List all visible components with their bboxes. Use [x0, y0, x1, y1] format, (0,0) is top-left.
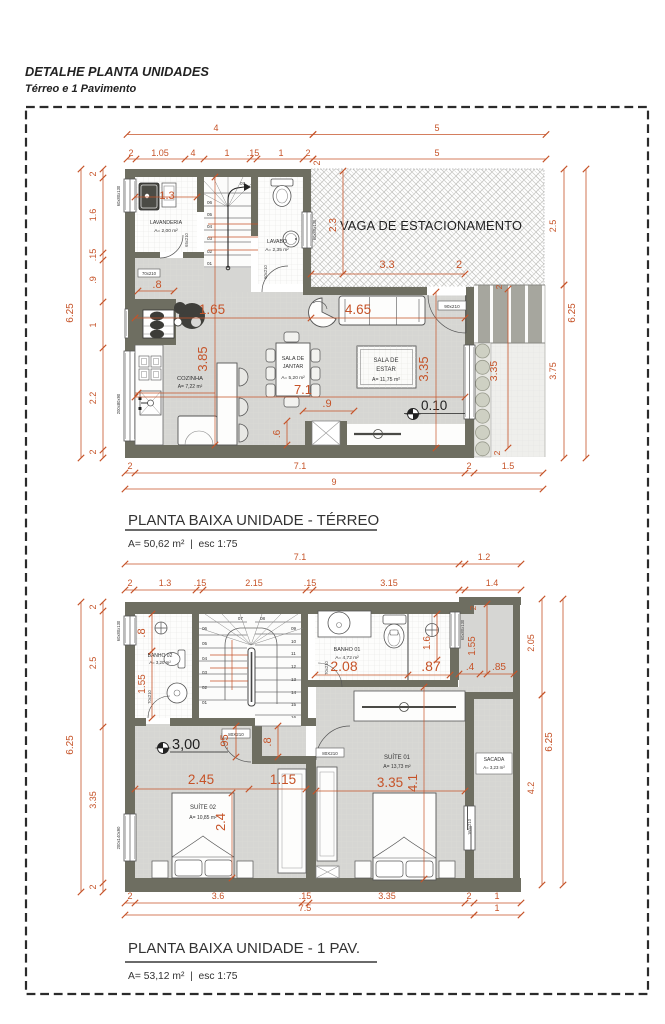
svg-text:3,00: 3,00: [172, 737, 200, 753]
svg-text:60x80x130: 60x80x130: [116, 185, 121, 206]
svg-text:70x210: 70x210: [142, 271, 157, 276]
svg-text:SALA DE: SALA DE: [373, 358, 398, 364]
svg-text:60x80x130: 60x80x130: [312, 219, 317, 240]
svg-text:2.2: 2.2: [88, 392, 98, 405]
svg-text:4.1: 4.1: [405, 774, 420, 792]
svg-text:6.25: 6.25: [65, 735, 76, 755]
svg-text:2.3: 2.3: [328, 218, 339, 232]
svg-text:LAVABO: LAVABO: [267, 239, 287, 245]
svg-text:15: 15: [291, 702, 297, 707]
svg-text:2: 2: [466, 461, 471, 471]
svg-text:.15: .15: [88, 249, 98, 262]
svg-text:2.5: 2.5: [88, 657, 98, 670]
svg-text:1.05: 1.05: [151, 148, 169, 158]
svg-text:08: 08: [260, 616, 266, 621]
svg-text:1.3: 1.3: [159, 190, 174, 202]
svg-text:.8: .8: [136, 628, 148, 637]
svg-text:.4: .4: [466, 662, 475, 673]
svg-text:4.65: 4.65: [345, 302, 371, 317]
svg-text:7.1: 7.1: [294, 461, 307, 471]
svg-text:A= 5,20 m²: A= 5,20 m²: [281, 375, 305, 381]
svg-text:.95: .95: [219, 734, 231, 749]
svg-text:03: 03: [202, 670, 208, 675]
svg-text:60x210: 60x210: [263, 264, 268, 278]
svg-text:Térreo e 1 Pavimento: Térreo e 1 Pavimento: [25, 83, 137, 95]
svg-text:2.5: 2.5: [548, 220, 558, 233]
svg-text:A= 3,20 m²: A= 3,20 m²: [149, 660, 171, 665]
svg-text:LAVANDERIA: LAVANDERIA: [150, 220, 183, 226]
svg-text:A= 50,62 m² | esc 1:75: A= 50,62 m² | esc 1:75: [128, 539, 238, 550]
svg-text:2.4: 2.4: [213, 813, 228, 831]
svg-text:2: 2: [88, 604, 98, 609]
svg-text:10: 10: [291, 639, 297, 644]
svg-text:11: 11: [291, 651, 296, 656]
svg-text:A= 11,75 m²: A= 11,75 m²: [372, 377, 400, 383]
svg-text:6.25: 6.25: [544, 732, 555, 752]
svg-text:4: 4: [190, 148, 195, 158]
svg-text:01: 01: [202, 700, 208, 705]
svg-text:2: 2: [128, 148, 133, 158]
svg-text:2.08: 2.08: [330, 658, 357, 674]
svg-text:VAGA DE ESTACIONAMENTO: VAGA DE ESTACIONAMENTO: [340, 218, 522, 233]
svg-text:02: 02: [202, 685, 208, 690]
svg-text:.87: .87: [421, 658, 441, 674]
svg-text:60x80x130: 60x80x130: [460, 619, 465, 640]
svg-text:1.55: 1.55: [467, 636, 478, 656]
svg-text:2: 2: [88, 449, 98, 454]
svg-text:14: 14: [291, 690, 297, 695]
svg-text:2: 2: [492, 450, 502, 455]
svg-text:04: 04: [207, 224, 213, 229]
svg-text:09: 09: [291, 626, 297, 631]
svg-text:65x210: 65x210: [184, 232, 189, 246]
svg-text:2: 2: [312, 160, 322, 165]
svg-text:9: 9: [331, 477, 336, 487]
svg-text:5: 5: [434, 148, 439, 158]
svg-text:.15: .15: [194, 578, 207, 588]
svg-text:7.5: 7.5: [299, 903, 312, 913]
svg-text:7.1: 7.1: [294, 552, 307, 562]
svg-text:70x210: 70x210: [324, 660, 329, 674]
svg-text:1: 1: [494, 903, 499, 913]
svg-text:4: 4: [213, 123, 218, 133]
svg-text:12: 12: [291, 664, 297, 669]
svg-text:1.3: 1.3: [159, 578, 172, 588]
svg-text:2: 2: [305, 148, 310, 158]
svg-text:06: 06: [202, 626, 208, 631]
svg-text:PLANTA BAIXA UNIDADE - 1 PAV.: PLANTA BAIXA UNIDADE - 1 PAV.: [128, 940, 360, 957]
svg-text:A= 53,12 m² | esc 1:75: A= 53,12 m² | esc 1:75: [128, 971, 238, 982]
svg-text:2: 2: [494, 284, 504, 289]
svg-text:2: 2: [456, 259, 462, 271]
svg-text:.8: .8: [152, 279, 161, 291]
svg-text:2.05: 2.05: [526, 634, 536, 652]
svg-text:3.35: 3.35: [378, 891, 396, 901]
svg-text:1.55: 1.55: [137, 674, 148, 694]
svg-text:1.65: 1.65: [199, 302, 225, 317]
svg-text:SUÍTE 02: SUÍTE 02: [190, 804, 217, 811]
svg-text:1.4: 1.4: [486, 578, 499, 588]
svg-text:4.2: 4.2: [526, 782, 536, 795]
svg-text:DETALHE PLANTA UNIDADES: DETALHE PLANTA UNIDADES: [25, 64, 209, 79]
svg-text:7.1: 7.1: [294, 382, 312, 397]
svg-text:ESTAR: ESTAR: [376, 367, 396, 373]
svg-text:A= 3,23 m²: A= 3,23 m²: [483, 765, 505, 770]
svg-text:1.15: 1.15: [270, 772, 296, 787]
svg-text:1.2: 1.2: [478, 552, 491, 562]
svg-text:2: 2: [127, 461, 132, 471]
svg-text:2: 2: [88, 884, 98, 889]
svg-text:.15: .15: [304, 578, 317, 588]
svg-text:5: 5: [434, 123, 439, 133]
svg-text:0.10: 0.10: [421, 398, 447, 413]
svg-text:A= 7,22 m²: A= 7,22 m²: [178, 384, 203, 390]
svg-text:05: 05: [202, 641, 208, 646]
svg-text:3.6: 3.6: [212, 891, 225, 901]
svg-text:3.35: 3.35: [88, 791, 98, 809]
svg-text:BANHO 02: BANHO 02: [148, 653, 173, 659]
svg-text:13: 13: [291, 677, 297, 682]
svg-text:06: 06: [207, 200, 213, 205]
svg-text:SALA DE: SALA DE: [282, 356, 305, 362]
svg-text:JANTAR: JANTAR: [283, 364, 304, 370]
svg-text:05: 05: [207, 212, 213, 217]
svg-text:2: 2: [466, 891, 471, 901]
svg-text:PLANTA BAIXA UNIDADE - TÉRREO: PLANTA BAIXA UNIDADE - TÉRREO: [128, 512, 379, 529]
svg-text:2.45: 2.45: [188, 772, 214, 787]
svg-text:04: 04: [202, 656, 208, 661]
svg-text:.8: .8: [262, 737, 274, 746]
svg-text:.15: .15: [247, 148, 260, 158]
svg-text:2: 2: [127, 891, 132, 901]
svg-text:3.15: 3.15: [380, 578, 398, 588]
svg-text:3.35: 3.35: [377, 775, 403, 790]
svg-text:3.35: 3.35: [488, 361, 500, 382]
svg-text:1.6: 1.6: [88, 209, 98, 222]
svg-text:3.75: 3.75: [548, 362, 558, 380]
svg-text:A= 2,00 m²: A= 2,00 m²: [154, 228, 178, 234]
svg-text:6.25: 6.25: [65, 303, 76, 323]
svg-text:01: 01: [207, 261, 213, 266]
svg-text:1: 1: [278, 148, 283, 158]
svg-text:.15: .15: [299, 891, 312, 901]
svg-text:SACADA: SACADA: [484, 757, 505, 763]
svg-text:3.35: 3.35: [416, 356, 431, 381]
svg-text:1.5: 1.5: [502, 461, 515, 471]
svg-text:1.6: 1.6: [422, 636, 433, 650]
svg-text:COZINHA: COZINHA: [177, 376, 203, 382]
svg-text:A= 2,35 m²: A= 2,35 m²: [265, 247, 289, 253]
svg-text:SUÍTE 01: SUÍTE 01: [384, 754, 411, 761]
svg-text:1: 1: [224, 148, 229, 158]
svg-text:.85: .85: [492, 662, 506, 673]
svg-text:3.85: 3.85: [195, 346, 210, 371]
svg-text:1: 1: [88, 322, 98, 327]
svg-text:BANHO 01: BANHO 01: [334, 647, 361, 653]
svg-text:80X210: 80X210: [322, 751, 338, 756]
svg-text:160x210: 160x210: [467, 818, 472, 835]
svg-text:07: 07: [238, 616, 244, 621]
svg-text:.6: .6: [272, 429, 283, 438]
svg-text:.9: .9: [322, 398, 331, 410]
svg-text:2: 2: [469, 605, 478, 610]
svg-text:200x140x90: 200x140x90: [116, 826, 121, 849]
svg-text:2: 2: [127, 578, 132, 588]
svg-text:.9: .9: [88, 276, 98, 284]
svg-text:200x80x90: 200x80x90: [116, 393, 121, 414]
svg-text:3.3: 3.3: [379, 259, 394, 271]
svg-text:60x80x130: 60x80x130: [116, 620, 121, 641]
svg-text:2: 2: [88, 171, 98, 176]
svg-text:2.15: 2.15: [245, 578, 263, 588]
svg-text:90x210: 90x210: [444, 304, 460, 309]
svg-text:1: 1: [494, 891, 499, 901]
svg-text:A= 13,73 m²: A= 13,73 m²: [383, 764, 411, 770]
svg-text:6.25: 6.25: [567, 303, 578, 323]
